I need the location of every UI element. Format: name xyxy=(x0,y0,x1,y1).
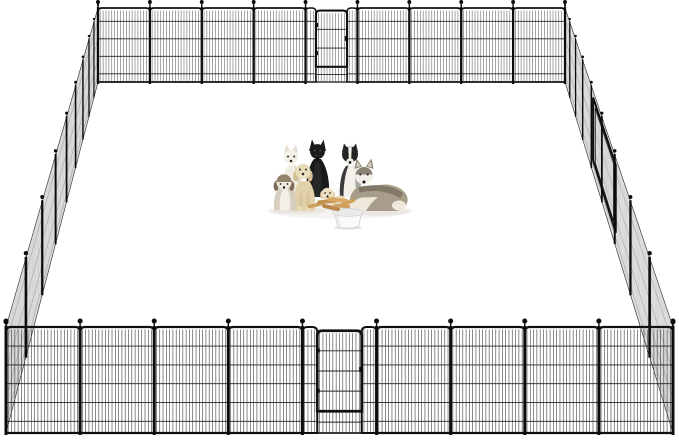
fence-panel xyxy=(451,327,525,433)
fence-panel xyxy=(254,8,306,82)
fence-back-row xyxy=(96,0,567,84)
food-bowl xyxy=(333,209,363,230)
fence-panel xyxy=(150,8,202,82)
fence-panel xyxy=(80,327,154,433)
fence-right-side xyxy=(564,4,676,434)
fence-panel xyxy=(98,8,150,82)
fence-panel xyxy=(357,8,409,82)
door-hinge xyxy=(317,348,320,352)
door-hinge xyxy=(315,51,318,55)
fence-back-row-gate xyxy=(306,8,358,82)
fence-panel xyxy=(377,327,451,433)
fence-right-side-gate-door xyxy=(593,98,616,233)
fence-front-row xyxy=(3,318,675,435)
fence-panel xyxy=(154,327,228,433)
fence-panel xyxy=(202,8,254,82)
fence-panel xyxy=(513,8,565,82)
fence-panel xyxy=(525,327,599,433)
door-latch xyxy=(345,36,348,41)
door-hinge xyxy=(315,23,318,27)
fence-panel xyxy=(409,8,461,82)
fence-front-row-gate xyxy=(302,327,376,433)
dog-group xyxy=(268,140,412,230)
fence-panel xyxy=(228,327,302,433)
fence-panel xyxy=(461,8,513,82)
fence-back-row-gate-sill xyxy=(316,67,347,82)
fence-front-row-gate-door xyxy=(317,331,363,412)
product-photo xyxy=(0,0,679,440)
fence-front-row-gate-sill xyxy=(317,411,361,433)
fence-back-row-gate-door xyxy=(315,11,347,67)
playpen-product-image xyxy=(0,0,679,440)
door-latch xyxy=(360,367,363,372)
door-hinge xyxy=(317,389,320,393)
